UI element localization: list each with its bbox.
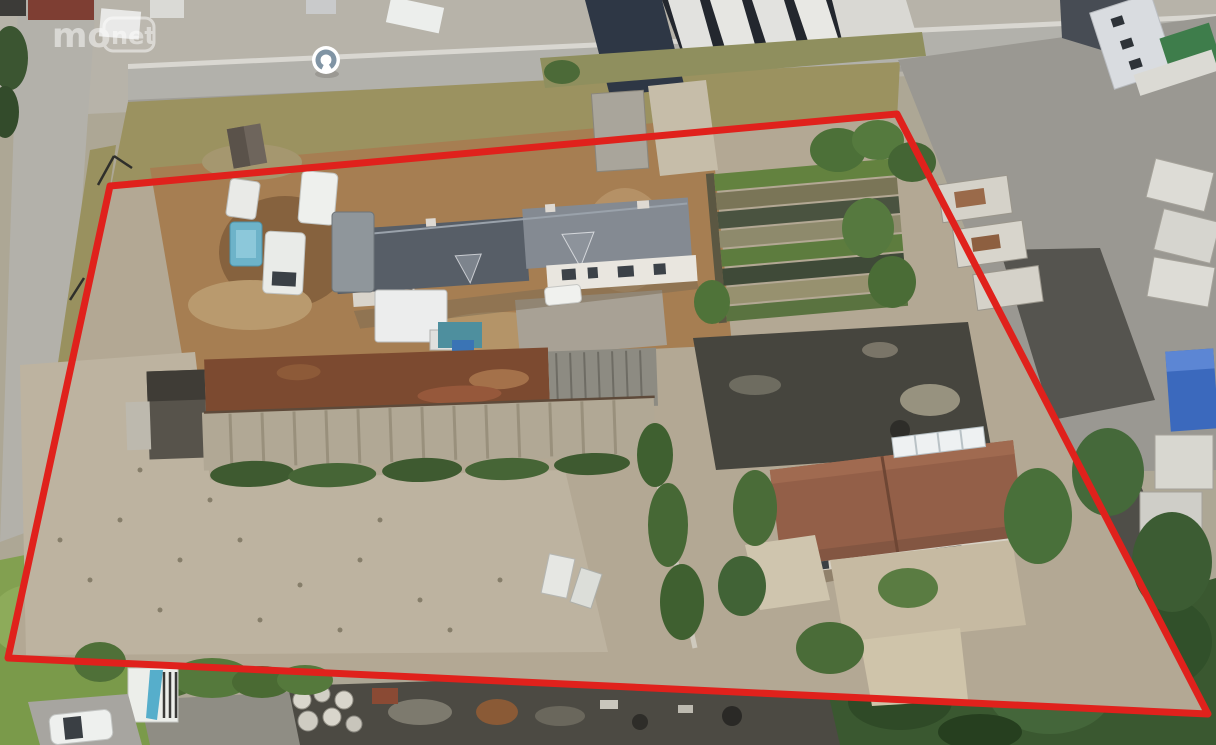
streetview-icon [312, 46, 340, 78]
scene-canvas: mo net [0, 0, 1216, 745]
chimney [426, 218, 437, 227]
white-car [544, 284, 582, 306]
aerial-photo: mo net [0, 0, 1216, 745]
bottom-driveway-car [28, 694, 142, 745]
gray-truck [332, 212, 374, 292]
chimney [637, 200, 650, 209]
watermark: mo net [52, 16, 156, 56]
bottom-white-building [128, 668, 178, 722]
watermark-text-left: mo [52, 16, 111, 56]
chimney [545, 204, 556, 213]
white-pickup [226, 178, 261, 220]
watermark-text-right: net [111, 22, 156, 50]
